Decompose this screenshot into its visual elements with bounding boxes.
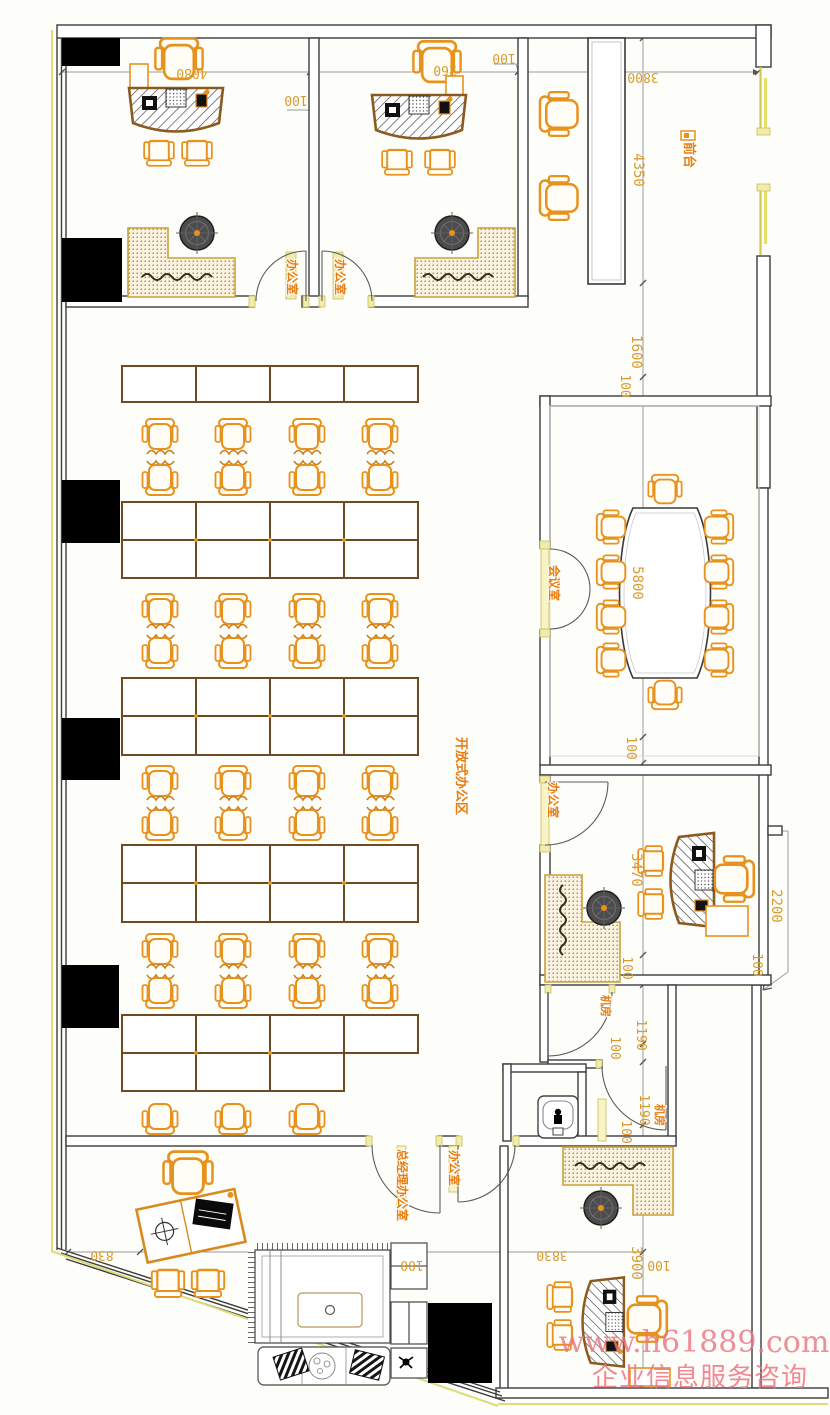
room-label-server-room-b: 机房 (653, 1104, 667, 1126)
room-label-server-room-a: 机房 (599, 995, 613, 1017)
round-table (176, 212, 218, 254)
guest-chair (638, 889, 663, 919)
chair-row-a (143, 419, 398, 495)
conference-chair (597, 510, 626, 543)
dim-4080: 4080 (176, 65, 207, 80)
dim-1600: 1600 (628, 335, 644, 369)
rug-fringe (255, 1243, 390, 1250)
room-label-office-top-left: 办公室 (285, 259, 300, 295)
dim-3800: 3800 (627, 69, 658, 84)
sink (538, 1096, 578, 1138)
guest-chair (382, 150, 412, 175)
watermark: www.h61889.com 企业信息服务咨询 (559, 1325, 830, 1393)
conference-chair (648, 475, 681, 504)
room-label-meeting-room: 会议室 (547, 565, 562, 601)
dim-1190-b: 1190 (636, 1094, 651, 1125)
executive-desk (129, 88, 223, 132)
guest-chair (425, 150, 455, 175)
dim-100-server-b: 100 (618, 1120, 633, 1143)
dim-4350: 4350 (630, 153, 646, 187)
reception-chair (540, 176, 578, 220)
dim-830: 830 (90, 1247, 113, 1262)
dim-3900: 3900 (628, 1246, 644, 1280)
lounge-sofa (258, 1347, 390, 1385)
dim-260: 260 (433, 62, 456, 77)
room-label-office-bottom: 办公室 (447, 1150, 462, 1186)
guest-chair (144, 141, 174, 166)
room-label-reception: 前台 (681, 142, 697, 168)
reception-desk-icon (681, 131, 695, 140)
window-right-lower (761, 186, 766, 255)
executive-chair (715, 856, 754, 902)
service-core (538, 1096, 578, 1138)
dim-100-meeting-bottom: 100 (623, 736, 638, 759)
dim-100-office2: 100 (492, 50, 515, 65)
conference-chair (705, 643, 734, 676)
watermark-url: www.h61889.com (559, 1325, 830, 1360)
conference-chair (597, 643, 626, 676)
dim-100-lounge: 100 (400, 1257, 423, 1272)
executive-desk (372, 95, 466, 139)
chair-row-b (143, 594, 398, 668)
desk-return (130, 64, 148, 90)
dim-1190-a: 1190 (633, 1019, 648, 1050)
office-top-mid-furniture (372, 41, 515, 297)
dim-100-bottom-right: 100 (647, 1257, 670, 1272)
window-right-upper (761, 67, 766, 133)
dim-2200: 2200 (768, 889, 784, 923)
reception-furniture (540, 38, 695, 284)
reception-chair (540, 92, 578, 136)
office-mid-right-furniture (545, 833, 754, 982)
round-table (431, 212, 473, 254)
dim-100-meeting-top: 100 (617, 374, 632, 397)
coffee-table (298, 1293, 362, 1327)
floor-plan-canvas: 4080 100 260 100 3800 4350 1600 100 5800… (0, 0, 830, 1415)
room-label-office-mid-right: 办公室 (546, 782, 561, 818)
dim-5800: 5800 (629, 566, 645, 600)
round-table (580, 1187, 622, 1229)
dim-100-server-a: 100 (607, 1036, 622, 1059)
guest-chair (192, 1270, 224, 1297)
reception-counter (588, 38, 625, 284)
conference-chair (705, 510, 734, 543)
dim-3830: 3830 (536, 1247, 567, 1262)
dim-3470: 3470 (628, 853, 644, 887)
chair-row-e (143, 1104, 325, 1134)
tray (309, 1353, 335, 1379)
guest-chair (547, 1282, 572, 1312)
rug-fringe (248, 1250, 255, 1343)
gm-office-furniture (136, 1152, 245, 1297)
meeting-room-furniture (597, 475, 733, 709)
lounge-furniture (248, 1243, 427, 1385)
floor-plan-drawing: 4080 100 260 100 3800 4350 1600 100 5800… (0, 0, 830, 1415)
guest-chair (182, 141, 212, 166)
dim-100-office-mid: 100 (619, 956, 634, 979)
room-label-office-top-mid: 办公室 (333, 259, 348, 295)
conference-chair (648, 681, 681, 710)
room-label-gm-office: 总经理办公室 (395, 1149, 410, 1221)
dim-100-divider: 100 (284, 92, 307, 107)
dim-100-right: 100 (749, 953, 764, 976)
chair-row-d (143, 934, 398, 1008)
chair-row-c (143, 766, 398, 840)
executive-chair (164, 1152, 213, 1194)
guest-chair (152, 1270, 184, 1297)
desk-bank-row-1 (122, 366, 418, 402)
desk-return (706, 906, 748, 936)
watermark-caption: 企业信息服务咨询 (592, 1363, 808, 1393)
room-label-open-office: 开放式办公区 (453, 737, 469, 815)
